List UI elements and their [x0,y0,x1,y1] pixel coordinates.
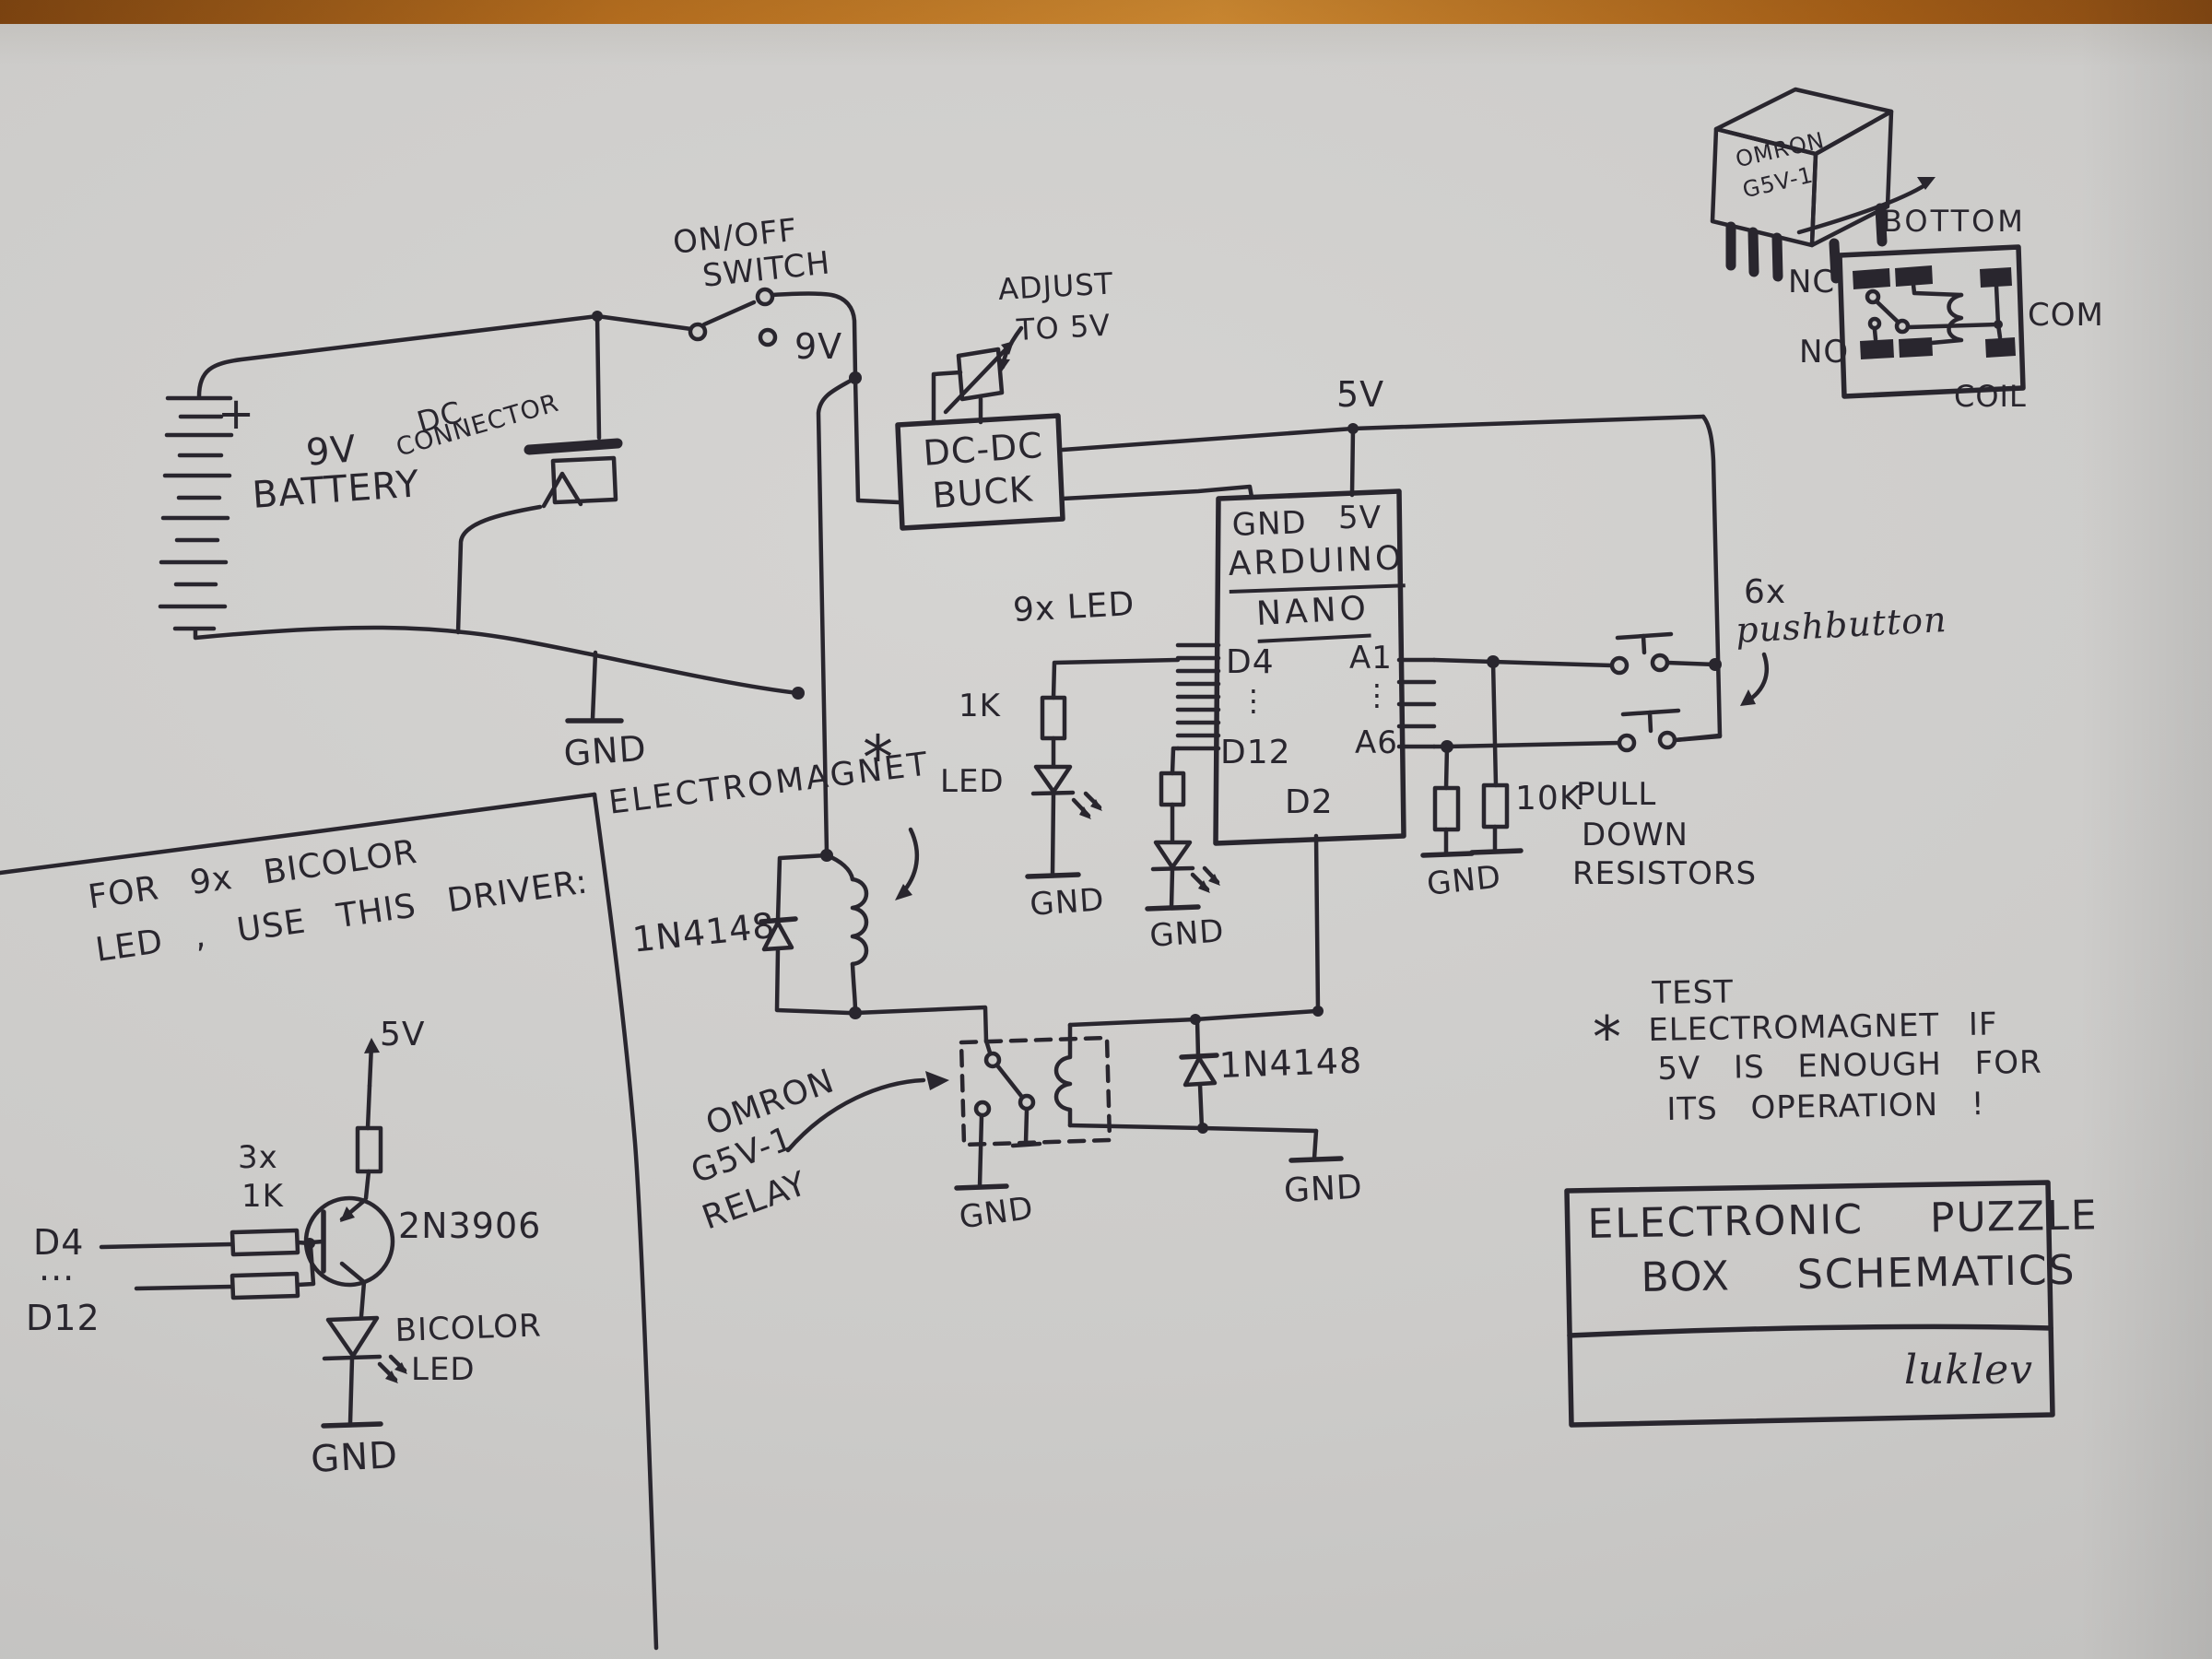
driver-gnd-label: GND [310,1431,399,1484]
battery-gnd-label: GND [562,726,648,778]
arduino-right-dots: ⋮ [1362,677,1393,715]
relay-diode-label: 1N4148 [1218,1039,1363,1089]
pulldown-label-3: RESISTORS [1572,853,1757,894]
adjust-label-2: TO 5V [1016,307,1112,350]
arduino-name-label-1: ARDUINO [1228,537,1405,593]
driver-circuit [101,1038,407,1426]
led-label: LED [940,761,1005,802]
relay-coil-label: COIL [1954,378,2027,417]
buck-label-2: BUCK [931,466,1035,519]
driver-1k-label: 1K [241,1176,284,1217]
pushbutton-arrow [1740,654,1767,706]
pushbutton-1 [1434,634,1715,673]
led-branch-2 [1147,748,1220,909]
photo-of-hand-drawn-schematic: { "common": { "gnd": "GND" }, "power": {… [0,0,2212,1659]
electromagnet-arrow [895,829,917,900]
relay-coil-gnd-label: GND [1283,1167,1364,1214]
battery-plus-label: + [218,385,255,442]
dc-connector-symbol [458,316,618,632]
led-resistor-label: 1K [959,686,1001,726]
led2-gnd-label: GND [1148,911,1226,957]
driver-5v-label: 5V [380,1014,426,1057]
5v-rail-label: 5V [1336,372,1384,418]
driver-d12-label: D12 [26,1296,100,1341]
arduino-5v-pin-label: 5V [1338,498,1382,538]
relay-bottom-view-label: BOTTOM [1882,203,2026,241]
arduino-left-dots: ⋮ [1239,682,1269,721]
driver-dots-label: ... [39,1246,75,1291]
pushbutton-2 [1434,711,1720,753]
potentiometer-symbol [934,341,1014,423]
pulldown-label-2: DOWN [1582,815,1688,855]
arduino-d2-label: D2 [1285,782,1334,825]
adjust-label-1: ADJUST [997,265,1114,309]
note-line-1: TEST [1652,971,1734,1014]
relay-com-label: COM [2028,295,2104,335]
pulldown-resistors [1423,662,1521,855]
arduino-gnd-pin-label: GND [1231,502,1307,546]
driver-qty-label: 3x [238,1137,278,1178]
arduino-d12-label: D12 [1220,732,1291,775]
arduino-a1-label: A1 [1349,638,1393,678]
relay-no-label: NO [1799,332,1849,372]
led-group-label: 9x LED [1012,583,1135,633]
arduino-d4-label: D4 [1226,641,1275,685]
pulldown-gnd-label: GND [1425,857,1503,905]
title-row-1: ELECTRONIC PUZZLE [1587,1189,2099,1251]
note-line-3: 5V IS ENOUGH FOR [1657,1042,2042,1089]
pulldown-value-label: 10K [1515,778,1582,821]
note-line-4: ITS OPERATION ! [1666,1084,1985,1130]
driver-bicolor-label-1: BICOLOR [394,1305,542,1351]
arduino-a6-label: A6 [1355,723,1398,763]
led1-gnd-label: GND [1029,879,1106,925]
title-row-2: BOX SCHEMATICS [1641,1244,2077,1304]
arduino-name-label-2: NANO [1255,588,1371,643]
title-author: luklev [1904,1344,2033,1396]
schematic-drawing [0,0,2212,1659]
9v-node-label: 9V [794,324,842,370]
electromagnet-star: * [863,719,894,798]
driver-transistor-label: 2N3906 [398,1204,541,1249]
driver-bicolor-label-2: LED [411,1349,476,1390]
relay-nc-label: NC [1788,262,1835,302]
relay-pin-diagram [1840,247,2023,396]
electromagnet-symbol [761,849,986,1041]
note-star: * [1593,1001,1622,1076]
pulldown-label-1: PULL [1576,774,1656,815]
relay-symbol [957,1006,1341,1188]
